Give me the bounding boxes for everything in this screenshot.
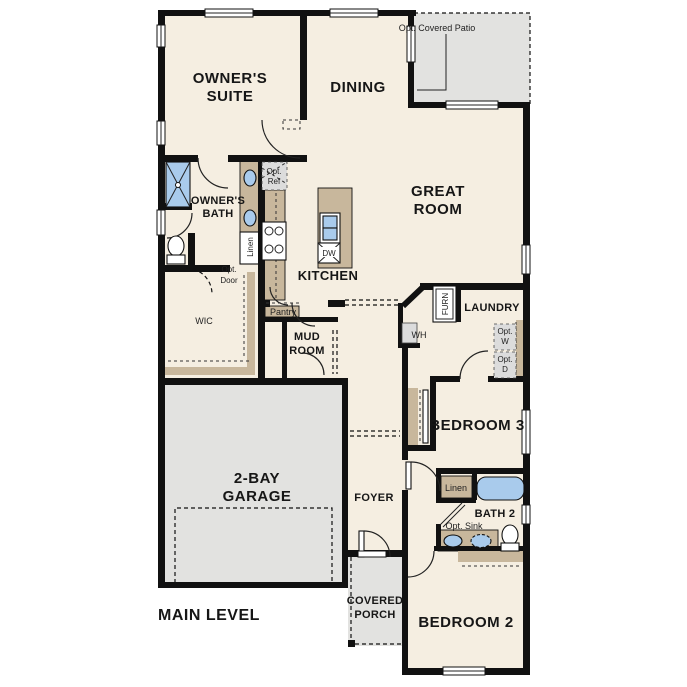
bedroom3-label: BEDROOM 3 <box>429 417 524 434</box>
island-sink-fixture <box>320 213 340 243</box>
garage-label: 2-BAY <box>234 470 280 487</box>
window <box>522 245 530 274</box>
bedroom3-door-leaf <box>406 462 411 489</box>
bedroom3-closet-shelf <box>408 388 418 445</box>
opt-covered-patio-label: Opt. Covered Patio <box>399 23 476 33</box>
linen-label: Linen <box>246 237 255 257</box>
window <box>157 210 165 235</box>
svg-text:PORCH: PORCH <box>354 609 395 621</box>
window <box>205 9 253 17</box>
opt-sink-label: Opt. Sink <box>445 521 483 531</box>
dining-label: DINING <box>330 79 386 96</box>
bath2-opt-sink <box>471 535 491 548</box>
patio-slider-door <box>446 101 498 109</box>
floorplan-page: OWNER'S SUITE DINING Opt. Covered Patio … <box>0 0 687 687</box>
stove-fixture <box>262 222 286 260</box>
svg-text:GARAGE: GARAGE <box>223 488 292 505</box>
window <box>157 121 165 145</box>
floorplan-drawing: OWNER'S SUITE DINING Opt. Covered Patio … <box>0 0 687 687</box>
svg-text:ROOM: ROOM <box>414 201 463 218</box>
wic-shelf-bottom <box>165 367 255 375</box>
window <box>330 9 378 17</box>
vanity-sink <box>244 170 256 186</box>
wh-label: WH <box>412 330 427 340</box>
window <box>443 667 485 675</box>
vanity-sink <box>244 210 256 226</box>
opt-d-label: Opt. <box>497 355 512 364</box>
owners-bath-label: OWNER'S <box>191 195 245 207</box>
laundry-shelf <box>516 320 524 380</box>
shower-fixture <box>166 162 190 207</box>
bath2-label: BATH 2 <box>475 508 516 520</box>
plan-title: MAIN LEVEL <box>158 607 260 624</box>
front-door-opening <box>358 551 386 557</box>
window <box>157 25 165 47</box>
svg-text:W: W <box>501 337 509 346</box>
opt-w-label: Opt. <box>497 327 512 336</box>
toilet-fixture <box>167 236 185 264</box>
foyer-label: FOYER <box>354 492 393 504</box>
wic-label: WIC <box>195 316 213 326</box>
svg-text:D: D <box>502 365 508 374</box>
bedroom2-label: BEDROOM 2 <box>418 614 513 631</box>
opt-ref-label: Opt. <box>266 167 281 176</box>
bedroom2-closet-shelf <box>458 551 525 562</box>
wic-shelf-right <box>247 272 255 375</box>
furn-label: FURN <box>441 293 450 315</box>
owners-suite-label: OWNER'S <box>193 70 268 87</box>
bath2-sink <box>444 535 462 547</box>
mud-room-label: MUD <box>294 331 320 343</box>
laundry-label: LAUNDRY <box>464 302 520 314</box>
dw-label: DW <box>322 249 336 258</box>
svg-text:SUITE: SUITE <box>207 88 254 105</box>
svg-text:BATH: BATH <box>203 208 234 220</box>
bathtub-fixture <box>477 477 524 500</box>
kitchen-label: KITCHEN <box>298 268 359 283</box>
window <box>522 505 530 524</box>
covered-porch-label: COVERED <box>347 595 404 607</box>
svg-text:Door: Door <box>220 276 238 285</box>
toilet-fixture <box>501 525 519 551</box>
opt-door-label: Opt. <box>221 265 236 274</box>
pantry-label: Pantry <box>270 307 297 317</box>
great-room-label: GREAT <box>411 183 465 200</box>
linen2-label: Linen <box>445 483 467 493</box>
svg-text:ROOM: ROOM <box>289 345 324 357</box>
svg-text:Ref: Ref <box>268 177 281 186</box>
bedroom3-closet-door <box>423 390 428 443</box>
